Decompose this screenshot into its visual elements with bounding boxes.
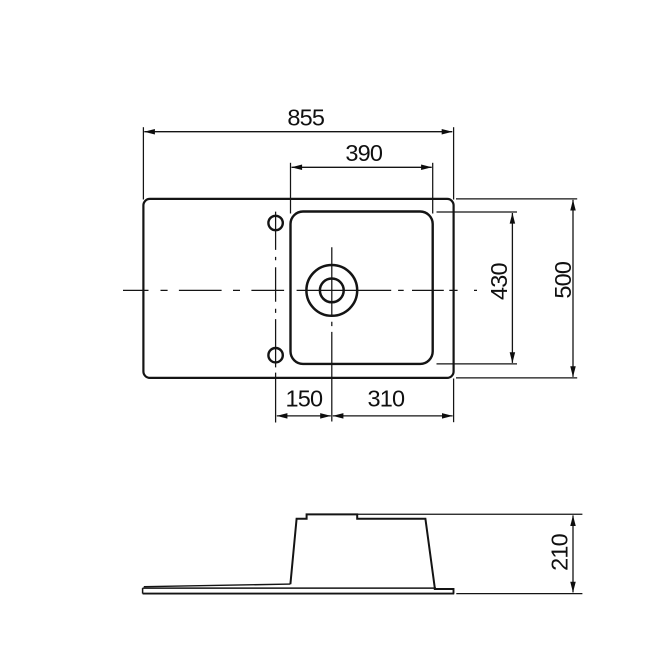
svg-text:430: 430 — [486, 262, 512, 300]
svg-text:855: 855 — [287, 104, 325, 130]
svg-text:500: 500 — [550, 261, 576, 299]
svg-text:310: 310 — [367, 386, 405, 412]
svg-text:150: 150 — [285, 386, 323, 412]
svg-text:390: 390 — [345, 140, 383, 166]
svg-text:210: 210 — [546, 533, 572, 571]
